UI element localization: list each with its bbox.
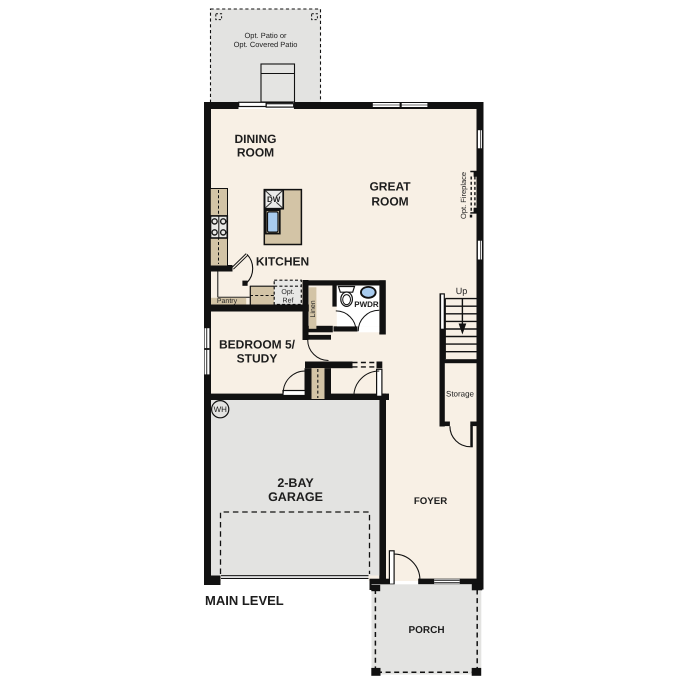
svg-text:Opt.: Opt. (281, 289, 294, 296)
svg-text:GARAGE: GARAGE (268, 490, 323, 504)
svg-text:Up: Up (456, 286, 468, 296)
svg-text:Linen: Linen (309, 300, 317, 317)
svg-text:DW: DW (267, 195, 281, 204)
svg-text:FOYER: FOYER (414, 496, 447, 507)
svg-text:ROOM: ROOM (371, 195, 408, 209)
svg-text:PWDR: PWDR (354, 300, 379, 309)
svg-text:2-BAY: 2-BAY (277, 476, 314, 490)
svg-text:WH: WH (214, 405, 228, 414)
svg-text:Opt. Patio or: Opt. Patio or (244, 31, 287, 40)
svg-text:Pantry: Pantry (217, 298, 238, 305)
svg-text:KITCHEN: KITCHEN (256, 254, 309, 268)
svg-text:Opt. Fireplace: Opt. Fireplace (459, 172, 468, 219)
svg-text:DINING: DINING (235, 132, 277, 146)
svg-text:Opt. Covered Patio: Opt. Covered Patio (234, 40, 298, 49)
svg-text:Storage: Storage (446, 389, 475, 398)
svg-text:Ref: Ref (283, 296, 294, 304)
svg-text:STUDY: STUDY (237, 351, 278, 365)
svg-text:PORCH: PORCH (408, 625, 444, 636)
svg-text:ROOM: ROOM (237, 145, 274, 159)
svg-text:MAIN LEVEL: MAIN LEVEL (205, 593, 284, 608)
svg-text:GREAT: GREAT (369, 180, 411, 194)
svg-text:BEDROOM 5/: BEDROOM 5/ (219, 338, 296, 352)
